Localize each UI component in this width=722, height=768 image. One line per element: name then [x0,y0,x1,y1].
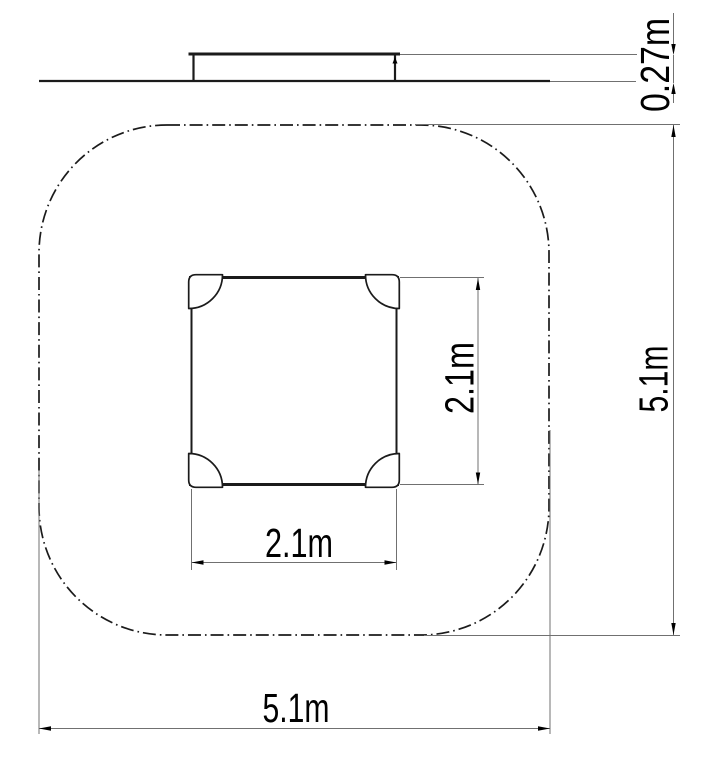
platform-outline [189,276,399,486]
arrowhead-right [538,726,550,730]
dim-label-zone-width: 5.1m [263,685,330,731]
arrowhead-left [192,560,204,564]
corner-detail-top-right [366,275,400,309]
elevation-view [39,54,550,81]
arrowhead-down [671,623,675,635]
arrowhead-up [671,125,675,137]
dim-platform-height: 0.27m [400,13,678,112]
origin-tick [393,57,398,64]
dim-platform-width: 2.1m [192,489,397,570]
dim-zone-width: 5.1m [39,430,550,734]
dim-label-platform-height: 0.27m [632,18,678,112]
technical-drawing-canvas: 0.27m 2.1m 2.1m [0,0,722,768]
dim-label-zone-depth: 5.1m [631,346,677,413]
arrowhead-up [476,278,480,290]
corner-detail-bottom-right [366,454,400,488]
dim-label-platform-depth: 2.1m [437,342,483,414]
dim-label-platform-width: 2.1m [265,520,333,566]
corner-detail-top-left [189,275,223,309]
arrowhead-down [476,473,480,485]
arrowhead-right [385,560,397,564]
corner-detail-bottom-left [189,454,223,488]
technical-drawing-page: 0.27m 2.1m 2.1m [0,0,722,768]
dim-platform-depth: 2.1m [400,278,484,485]
arrowhead-left [39,726,51,730]
